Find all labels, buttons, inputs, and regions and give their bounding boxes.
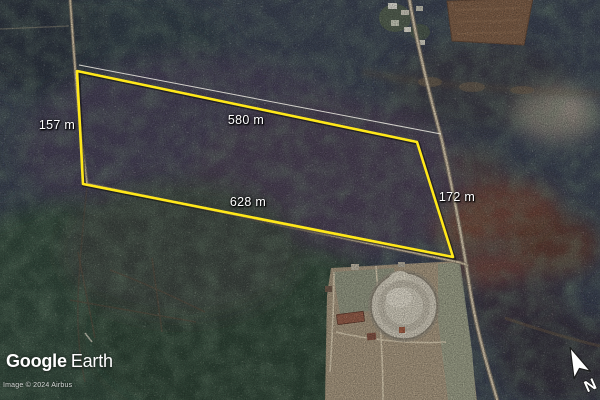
google-earth-viewport[interactable]: N 157 m 580 m 628 m 172 m GoogleEarth Im… — [0, 0, 600, 400]
measurement-label-right: 172 m — [439, 190, 475, 204]
satellite-map-canvas[interactable]: N — [0, 0, 600, 400]
terrain-texture — [0, 0, 600, 400]
measurement-label-top: 580 m — [228, 113, 264, 127]
measurement-label-bottom: 628 m — [230, 195, 266, 209]
attribution-text: Image © 2024 Airbus — [3, 382, 72, 389]
logo-google-text: Google — [6, 351, 67, 371]
measurement-label-left: 157 m — [39, 118, 75, 132]
logo-earth-text: Earth — [71, 351, 113, 371]
google-earth-logo: GoogleEarth — [6, 351, 113, 371]
